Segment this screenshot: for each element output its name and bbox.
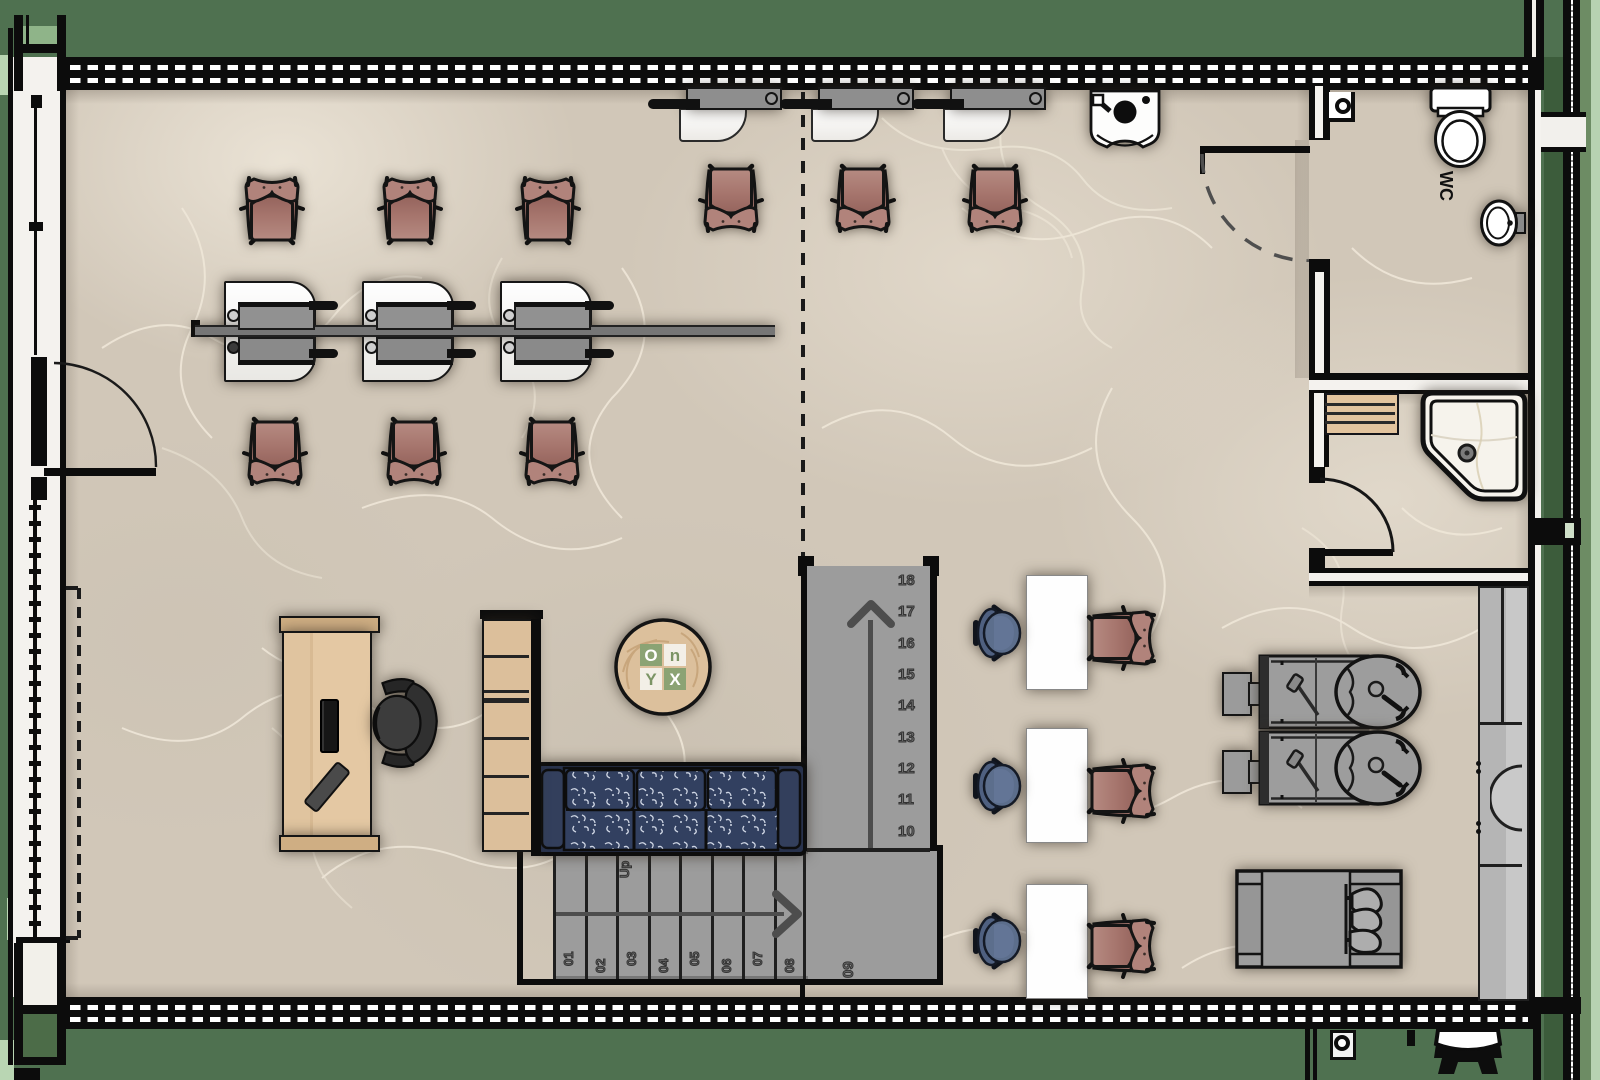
svg-text:n: n bbox=[670, 646, 680, 665]
svg-text:X: X bbox=[669, 670, 681, 689]
svg-text:Y: Y bbox=[645, 670, 657, 689]
svg-text:O: O bbox=[644, 646, 657, 665]
